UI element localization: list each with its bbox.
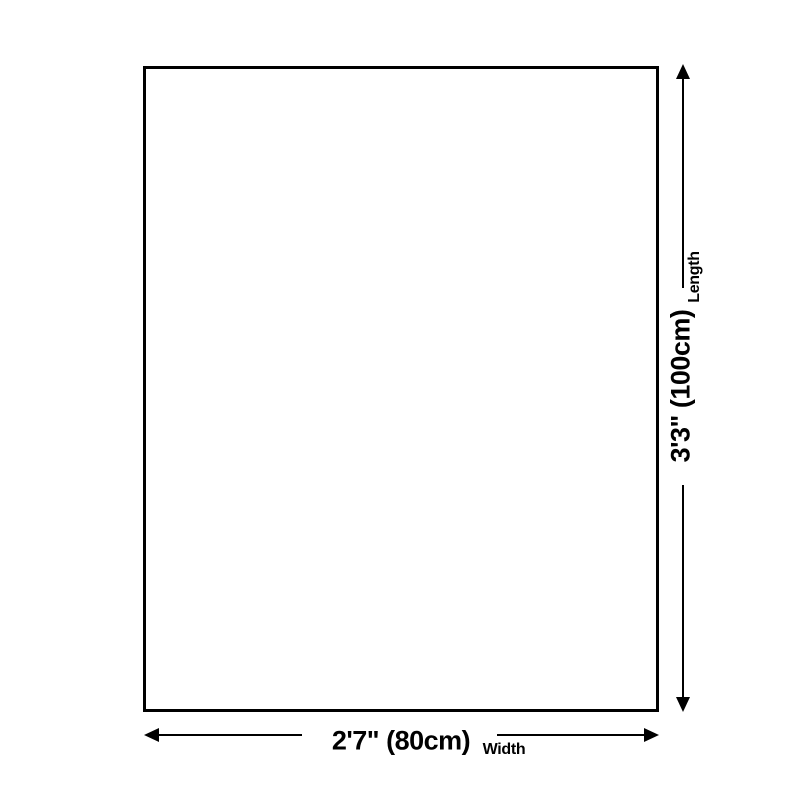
width-caption-label: Width xyxy=(483,742,526,758)
width-arrow-line-right xyxy=(497,734,645,737)
product-outline-rectangle xyxy=(143,66,659,712)
length-caption-label: Length xyxy=(687,251,703,303)
length-arrow-line-bottom xyxy=(682,485,685,698)
dimension-diagram: 3'3" (100cm) Length 2'7" (80cm) Width xyxy=(0,0,800,800)
arrow-right-icon xyxy=(644,728,659,742)
width-value-label: 2'7" (80cm) xyxy=(332,728,470,755)
arrow-up-icon xyxy=(676,64,690,79)
arrow-down-icon xyxy=(676,697,690,712)
length-arrow-line-top xyxy=(682,78,685,288)
width-arrow-line-left xyxy=(157,734,302,737)
length-value-label: 3'3" (100cm) xyxy=(668,310,695,463)
